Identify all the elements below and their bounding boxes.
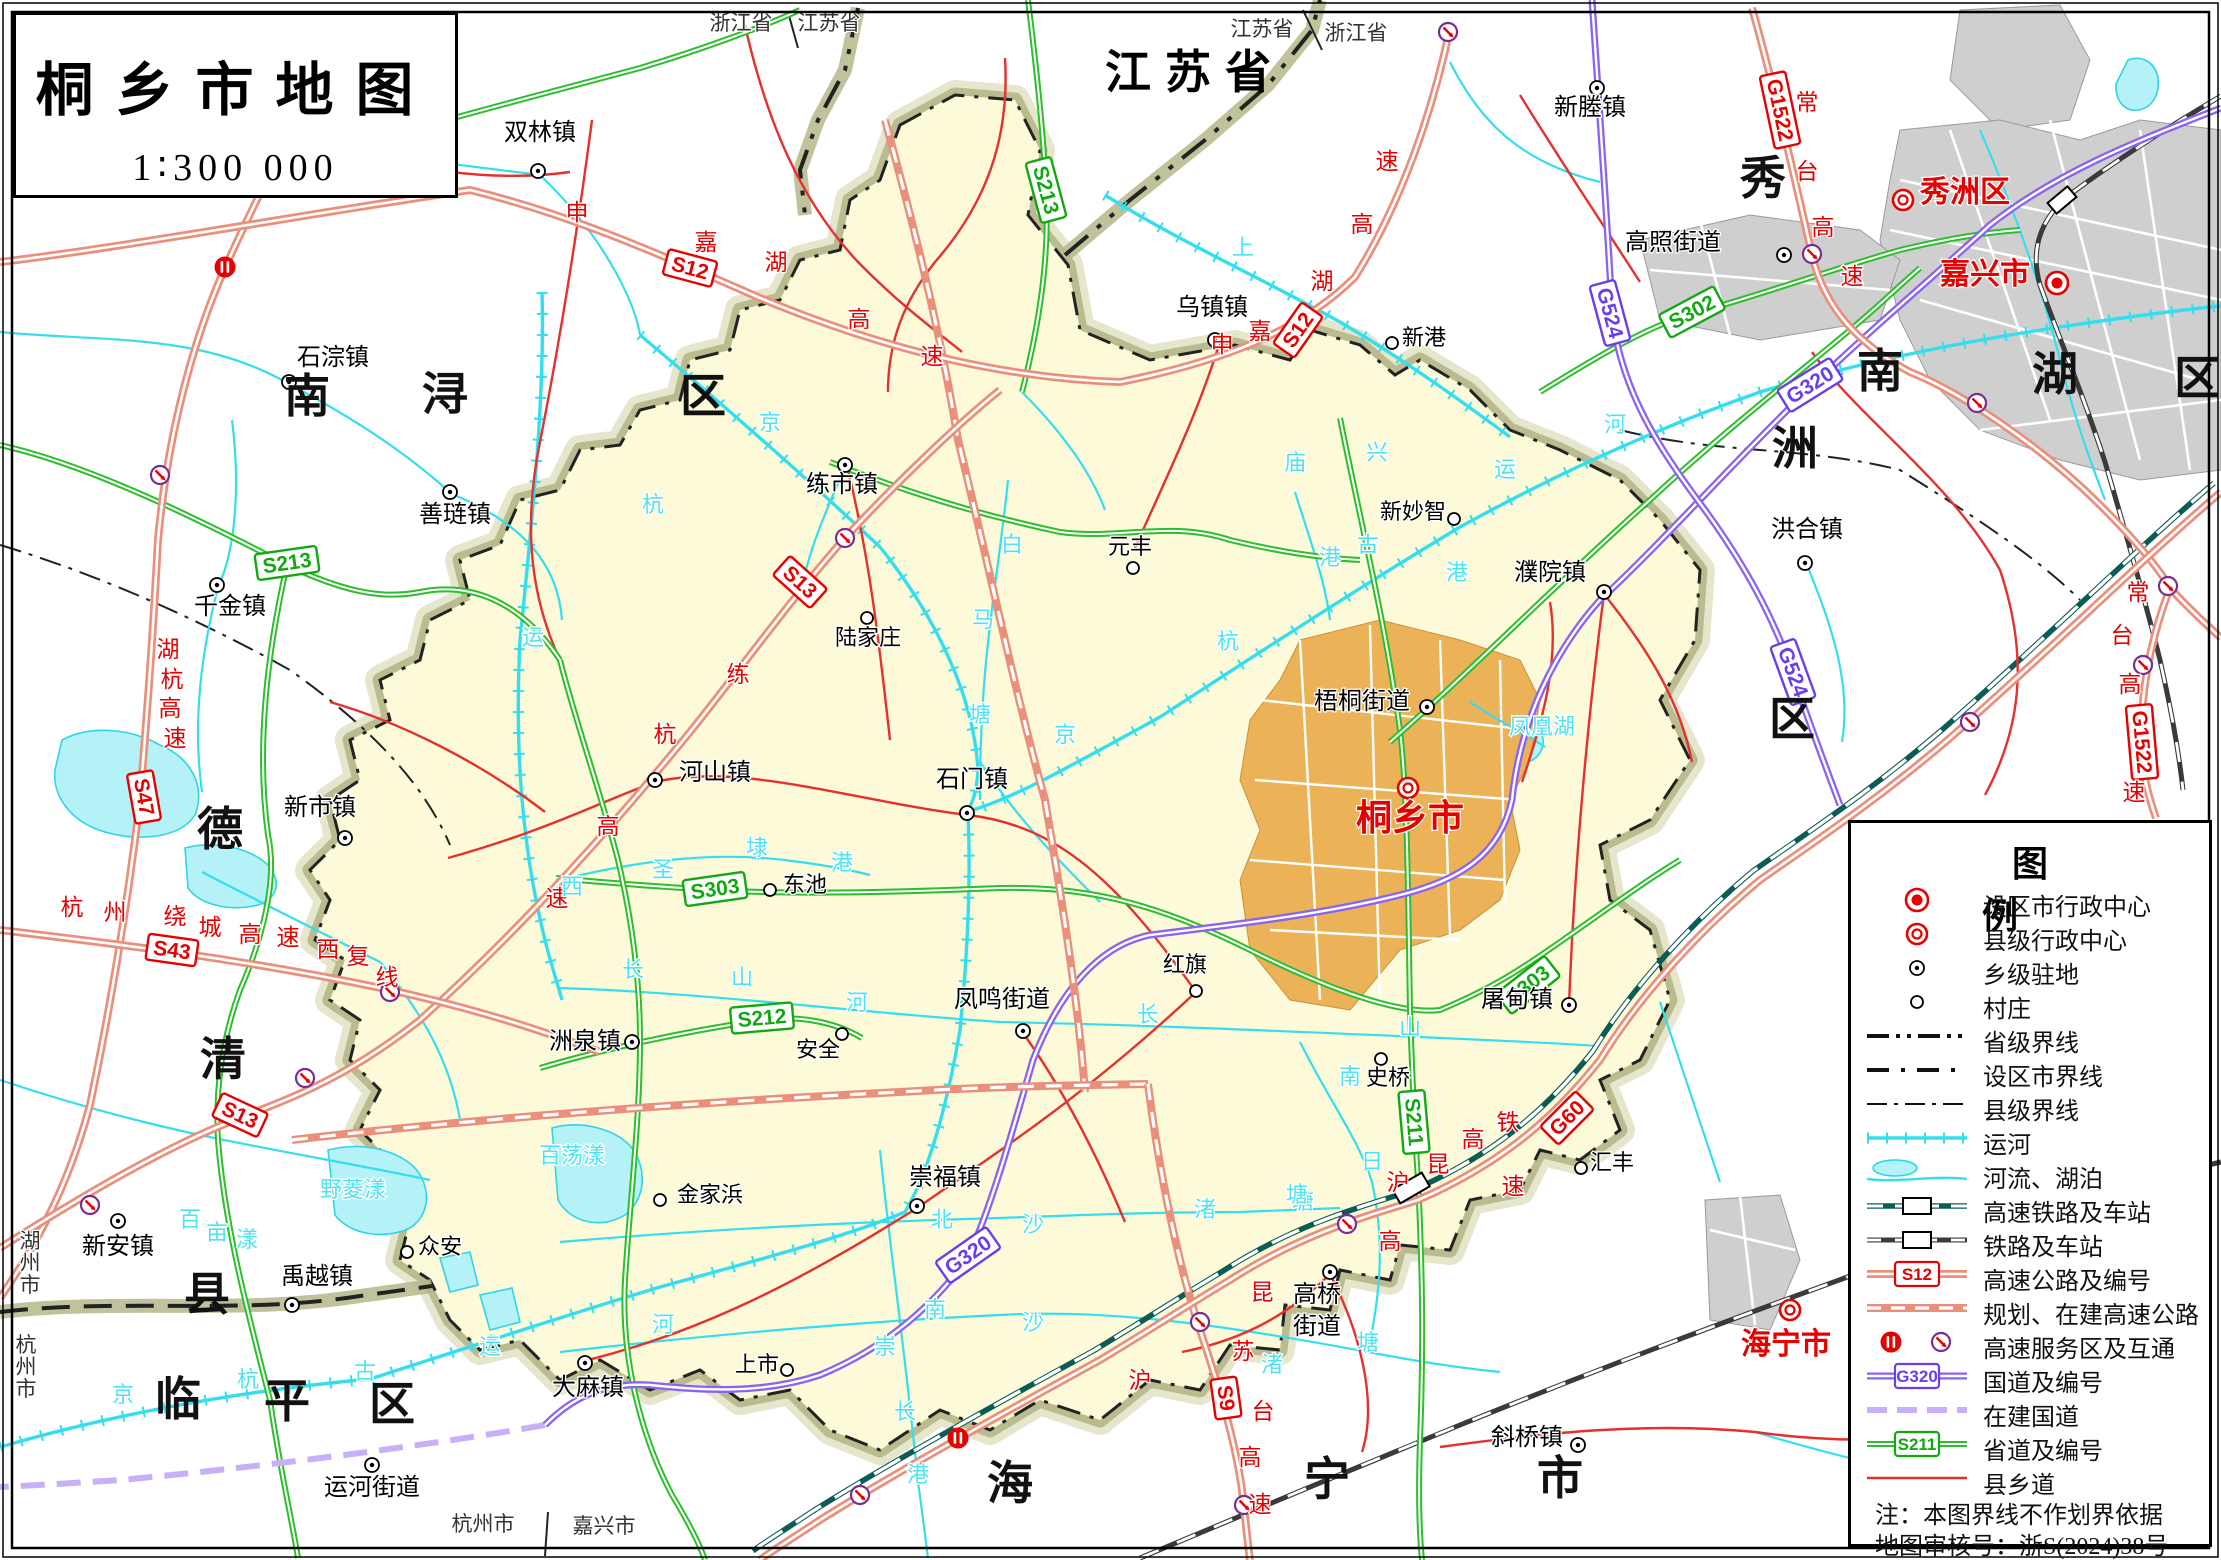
label-riv: 杭 <box>237 1367 259 1392</box>
label-bord: 江苏省 <box>1231 17 1294 41</box>
legend-item-5: 省级界线 <box>1851 1021 2209 1051</box>
township-symbol <box>365 1458 379 1472</box>
township-symbol <box>1798 556 1812 570</box>
label-edgev: 湖州市 <box>20 1229 41 1297</box>
label-dist: 湖 <box>2032 349 2078 400</box>
label-town: 高照街道 <box>1625 229 1721 256</box>
svg-text:S211: S211 <box>1400 1097 1427 1147</box>
label-road: 高 <box>597 814 620 839</box>
label-riv: 河 <box>846 990 868 1015</box>
label-riv: 塘 <box>969 702 991 727</box>
label-dist: 临 <box>155 1374 201 1425</box>
label-road: 速 <box>1376 149 1399 174</box>
label-town: 新市镇 <box>284 794 356 821</box>
label-road: 绕 <box>164 904 187 929</box>
township-symbol <box>210 578 224 592</box>
label-riv: 河 <box>652 1312 674 1337</box>
label-riv: 百 <box>179 1207 201 1232</box>
label-road: 常 <box>2127 580 2150 605</box>
label-city2: 嘉兴市 <box>1940 257 2030 291</box>
village-symbol <box>654 1194 666 1206</box>
township-symbol <box>443 485 457 499</box>
township-symbol <box>1777 248 1791 262</box>
label-riv: 运 <box>1494 457 1516 482</box>
label-town: 千金镇 <box>194 593 266 620</box>
legend-symbol-countyline <box>1861 1089 1973 1119</box>
svg-text:S12: S12 <box>1902 1265 1932 1284</box>
township-symbol <box>1562 998 1576 1012</box>
label-road: 嘉 <box>1249 319 1272 344</box>
city-center-symbol <box>2046 272 2068 294</box>
label-vill: 金家浜 <box>677 1182 743 1207</box>
interchange-icon <box>1803 245 1821 263</box>
label-riv: 野菱漾 <box>320 1177 386 1202</box>
label-bord: 浙江省 <box>1325 21 1388 45</box>
label-road: 复 <box>347 944 370 969</box>
legend-label: 高速公路及编号 <box>1983 1261 2151 1296</box>
label-dist: 洲 <box>1772 423 1818 474</box>
village-symbol <box>764 884 776 896</box>
label-riv: 古 <box>354 1359 376 1384</box>
label-town: 屠甸镇 <box>1481 986 1553 1013</box>
legend-label: 乡级驻地 <box>1983 955 2079 990</box>
svg-text:S211: S211 <box>1898 1435 1937 1454</box>
label-road: 湖 <box>157 637 180 662</box>
legend-item-15: G320国道及编号 <box>1851 1361 2209 1391</box>
legend-symbol-planned <box>1861 1293 1973 1323</box>
label-town: 练市镇 <box>806 471 878 498</box>
label-bord: 杭州市 <box>452 1512 515 1536</box>
label-riv: 兴 <box>1366 440 1388 465</box>
svg-text:G320: G320 <box>1896 1367 1938 1386</box>
label-vill: 新港 <box>1402 325 1446 350</box>
label-road: 城 <box>199 915 222 940</box>
label-road: 申 <box>566 200 589 225</box>
svg-text:S9: S9 <box>1212 1384 1238 1413</box>
interchange-icon <box>1968 394 1986 412</box>
label-road: 线 <box>376 965 399 990</box>
label-riv: 港 <box>1319 545 1341 570</box>
label-road: 练 <box>727 662 750 687</box>
township-symbol <box>1571 1438 1585 1452</box>
label-road: 速 <box>1249 1492 1272 1517</box>
label-road: 常 <box>1796 90 1819 115</box>
label-vill: 红旗 <box>1163 952 1207 977</box>
label-road: 苏 <box>1232 1339 1255 1364</box>
label-prov: 江苏省 <box>1105 47 1285 98</box>
label-riv: 亩 <box>206 1220 228 1245</box>
label-riv: 漾 <box>236 1227 258 1252</box>
label-vill: 东池 <box>783 872 827 897</box>
label-road: 昆 <box>1251 1280 1274 1305</box>
label-riv: 港 <box>831 850 853 875</box>
township-symbol <box>1590 81 1604 95</box>
label-riv: 长 <box>894 1399 916 1424</box>
label-town: 乌镇镇 <box>1176 294 1248 321</box>
interchange-icon <box>81 1196 99 1214</box>
township-symbol <box>648 773 662 787</box>
label-road: 高 <box>848 307 871 332</box>
svg-text:S212: S212 <box>737 1005 788 1032</box>
label-riv: 凤凰湖 <box>1509 714 1575 739</box>
label-road: 沪 <box>1387 1170 1410 1195</box>
label-town: 运河街道 <box>324 1474 420 1501</box>
township-symbol <box>1016 1024 1030 1038</box>
label-road: 杭 <box>61 895 84 920</box>
legend-symbol-provline <box>1861 1021 1973 1051</box>
label-riv: 圣 <box>652 857 674 882</box>
label-riv: 杭 <box>642 492 664 517</box>
label-riv: 渚 <box>1261 1352 1283 1377</box>
label-dist: 区 <box>369 1379 415 1430</box>
service-area-icon <box>215 257 236 278</box>
legend-label: 河流、湖泊 <box>1983 1159 2103 1194</box>
service-area-icon <box>948 1428 969 1449</box>
label-dist: 南 <box>1857 346 1903 397</box>
label-road: 州 <box>104 900 127 925</box>
label-riv: 长 <box>622 957 644 982</box>
legend-label: 在建国道 <box>1983 1397 2079 1432</box>
label-dist: 区 <box>680 371 726 422</box>
legend-item-18: 县乡道 <box>1851 1463 2209 1493</box>
legend-item-7: 县级界线 <box>1851 1089 2209 1119</box>
label-riv: 百荡漾 <box>539 1143 605 1168</box>
legend-symbol-ucnational <box>1861 1395 1973 1425</box>
label-riv: 运 <box>522 625 544 650</box>
label-road: 高 <box>1462 1127 1485 1152</box>
label-riv: 南 <box>924 1297 946 1322</box>
label-dist: 德 <box>197 804 243 855</box>
legend-symbol-service <box>1861 1327 1973 1357</box>
label-riv: 杭 <box>1217 629 1239 654</box>
label-town: 大麻镇 <box>552 1374 624 1401</box>
road-badge-S43: S43 <box>145 934 198 967</box>
legend-item-1: 设区市行政中心 <box>1851 885 2209 915</box>
label-town: 善琏镇 <box>419 501 491 528</box>
legend-item-10: 高速铁路及车站 <box>1851 1191 2209 1221</box>
label-road: 速 <box>1502 1174 1525 1199</box>
label-city2: 秀洲区 <box>1919 176 2010 209</box>
label-town: 濮院镇 <box>1514 559 1586 586</box>
label-road: 台 <box>2111 623 2134 648</box>
label-dist: 海 <box>987 1458 1033 1509</box>
legend-label: 县级行政中心 <box>1983 921 2127 956</box>
label-road: 湖 <box>1311 269 1334 294</box>
label-riv: 运 <box>479 1334 501 1359</box>
legend-label: 高速铁路及车站 <box>1983 1193 2151 1228</box>
township-symbol <box>531 164 545 178</box>
legend-symbol-expwy: S12 <box>1861 1259 1973 1289</box>
label-riv: 崇 <box>874 1334 896 1359</box>
village-symbol <box>1386 337 1398 349</box>
label-dist: 南 <box>284 371 330 422</box>
township-symbol <box>111 1214 125 1228</box>
label-dist: 市 <box>1537 1453 1583 1504</box>
label-town: 斜桥镇 <box>1491 1424 1563 1451</box>
label-road: 西 <box>317 937 340 962</box>
label-riv: 沙 <box>1022 1212 1044 1237</box>
interchange-icon <box>151 466 169 484</box>
legend-symbol-twn <box>1861 953 1973 983</box>
label-vill: 新妙智 <box>1380 499 1446 524</box>
legend-label: 设区市界线 <box>1983 1057 2103 1092</box>
label-riv: 马 <box>972 607 994 632</box>
legend-symbol-vlg <box>1861 987 1973 1017</box>
label-riv: 京 <box>1054 722 1076 747</box>
label-road: 嘉 <box>695 230 718 255</box>
label-road: 台 <box>1252 1399 1275 1424</box>
label-riv: 塘 <box>1286 1182 1308 1207</box>
legend-symbol-canal <box>1861 1123 1973 1153</box>
township-symbol <box>960 806 974 820</box>
label-road: 高 <box>2119 672 2142 697</box>
legend-symbol-rail <box>1861 1225 1973 1255</box>
interchange-icon <box>836 529 854 547</box>
label-riv: 沙 <box>1022 1310 1044 1335</box>
label-riv: 南 <box>1339 1064 1361 1089</box>
label-riv: 庙 <box>1284 450 1306 475</box>
label-vill: 上市 <box>735 1352 779 1377</box>
label-vill: 汇丰 <box>1590 1150 1634 1175</box>
township-symbol <box>838 458 852 472</box>
label-riv: 西 <box>561 874 583 899</box>
label-vill: 史桥 <box>1366 1065 1410 1090</box>
legend-note-2: 地图审核号：浙S(2024)38号 <box>1875 1526 2168 1560</box>
map-scale: 1∶300 000 <box>16 145 455 190</box>
label-town: 新塍镇 <box>1554 94 1626 121</box>
legend-label: 国道及编号 <box>1983 1363 2103 1398</box>
label-riv: 河 <box>1604 412 1626 437</box>
legend-label: 设区市行政中心 <box>1983 887 2151 922</box>
interchange-icon <box>296 1069 314 1087</box>
township-symbol <box>285 1298 299 1312</box>
county-center-symbol <box>1780 1300 1800 1320</box>
township-symbol <box>338 831 352 845</box>
label-road: 沪 <box>1129 1368 1152 1393</box>
legend-label: 高速服务区及互通 <box>1983 1329 2175 1364</box>
village-symbol <box>1448 513 1460 525</box>
legend-symbol-cnty <box>1861 919 1973 949</box>
legend-symbol-countyroad <box>1861 1463 1973 1493</box>
label-town: 石门镇 <box>936 766 1008 793</box>
label-riv: 山 <box>731 965 753 990</box>
legend-symbol-provincial: S211 <box>1861 1429 1973 1459</box>
interchange-icon <box>1961 713 1979 731</box>
label-road: 杭 <box>161 667 184 692</box>
village-symbol <box>781 1364 793 1376</box>
legend-symbol-national: G320 <box>1861 1361 1973 1391</box>
legend-item-17: S211省道及编号 <box>1851 1429 2209 1459</box>
label-road: 速 <box>164 726 187 751</box>
label-dist: 区 <box>1769 694 1815 745</box>
legend-item-8: 运河 <box>1851 1123 2209 1153</box>
label-town: 崇福镇 <box>909 1164 981 1191</box>
label-riv: 北 <box>931 1207 953 1232</box>
label-road: 高 <box>1379 1229 1402 1254</box>
village-symbol <box>1575 1162 1587 1174</box>
township-symbol <box>1420 700 1434 714</box>
page-title: 桐乡市地图 <box>16 43 455 127</box>
township-symbol <box>1323 1265 1337 1279</box>
road-badge-G1522: G1522 <box>2126 704 2158 780</box>
legend-label: 村庄 <box>1983 989 2031 1024</box>
label-edgev: 杭州市 <box>16 1333 37 1401</box>
interchange-icon <box>1191 1313 1209 1331</box>
road-badge-S211: S211 <box>1398 1090 1429 1154</box>
legend-symbol-hsr <box>1861 1191 1973 1221</box>
legend-label: 省级界线 <box>1983 1023 2079 1058</box>
legend-item-13: 规划、在建高速公路 <box>1851 1293 2209 1323</box>
legend-item-14: 高速服务区及互通 <box>1851 1327 2209 1357</box>
legend-note-1: 注：本图界线不作划界依据 <box>1875 1495 2163 1530</box>
label-riv: 长 <box>1137 1002 1159 1027</box>
road-badge-G1522: G1522 <box>1760 71 1801 149</box>
legend-item-11: 铁路及车站 <box>1851 1225 2209 1255</box>
legend-label: 运河 <box>1983 1125 2031 1160</box>
label-bord: 嘉兴市 <box>573 1514 636 1538</box>
label-road: 速 <box>921 344 944 369</box>
legend-label: 规划、在建高速公路 <box>1983 1295 2199 1330</box>
interchange-icon <box>1338 1215 1356 1233</box>
interchange-icon <box>2159 577 2177 595</box>
road-badge-S212: S212 <box>730 1002 794 1033</box>
label-riv: 日 <box>1361 1149 1383 1174</box>
village-symbol <box>1127 562 1139 574</box>
label-town: 石淙镇 <box>297 344 369 371</box>
label-riv: 港 <box>907 1462 929 1487</box>
legend-item-2: 县级行政中心 <box>1851 919 2209 949</box>
label-road: 台 <box>1796 159 1819 184</box>
label-town: 街道 <box>1293 1313 1341 1340</box>
label-vill: 元丰 <box>1108 534 1152 559</box>
legend-item-16: 在建国道 <box>1851 1395 2209 1425</box>
map-page: S12S12S13S13S47S43S9G1522G1522G60G320G32… <box>0 0 2221 1560</box>
label-town: 洪合镇 <box>1771 516 1843 543</box>
legend-symbol-riverlake <box>1861 1157 1973 1187</box>
village-symbol <box>1190 985 1202 997</box>
label-road: 湖 <box>765 250 788 275</box>
label-vill: 安全 <box>796 1037 840 1062</box>
label-bord: 江苏省 <box>798 11 861 35</box>
label-town: 洲泉镇 <box>549 1028 621 1055</box>
label-vill: 陆家庄 <box>835 625 901 650</box>
label-road: 昆 <box>1427 1152 1450 1177</box>
label-town: 梧桐街道 <box>1314 688 1410 715</box>
label-dist: 平 <box>264 1376 310 1427</box>
township-symbol <box>578 1356 592 1370</box>
label-town: 双林镇 <box>504 119 576 146</box>
label-road: 高 <box>159 696 182 721</box>
label-riv: 古 <box>1357 532 1379 557</box>
legend-symbol-cityline <box>1861 1055 1973 1085</box>
legend-label: 县级界线 <box>1983 1091 2079 1126</box>
county-center-symbol <box>1398 778 1418 798</box>
legend-item-6: 设区市界线 <box>1851 1055 2209 1085</box>
label-town: 新安镇 <box>82 1233 154 1260</box>
label-dist: 宁 <box>1304 1454 1350 1505</box>
label-vill: 众安 <box>418 1234 462 1259</box>
label-road: 速 <box>2123 780 2146 805</box>
label-town: 河山镇 <box>679 759 751 786</box>
label-road: 高 <box>1239 1445 1262 1470</box>
label-riv: 塘 <box>1357 1330 1379 1355</box>
township-symbol <box>910 1199 924 1213</box>
label-dist: 区 <box>2174 353 2220 404</box>
legend: 图 例 设区市行政中心县级行政中心乡级驻地村庄省级界线设区市界线县级界线运河河流… <box>1848 820 2212 1547</box>
label-town: 禹越镇 <box>281 1263 353 1290</box>
legend-item-4: 村庄 <box>1851 987 2209 1017</box>
label-road: 铁 <box>1497 1110 1520 1135</box>
legend-label: 省道及编号 <box>1983 1431 2103 1466</box>
interchange-icon <box>851 1486 869 1504</box>
label-road: 高 <box>1351 212 1374 237</box>
label-road: 申 <box>1211 332 1234 357</box>
village-symbol <box>401 1246 413 1258</box>
label-town: 凤鸣街道 <box>954 986 1050 1013</box>
township-symbol <box>1597 585 1611 599</box>
label-riv: 白 <box>1001 532 1023 557</box>
label-dist: 浔 <box>422 369 468 420</box>
label-bord: 浙江省 <box>710 11 773 35</box>
label-riv: 渚 <box>1194 1197 1216 1222</box>
label-road: 速 <box>277 925 300 950</box>
label-riv: 港 <box>1446 560 1468 585</box>
county-center-symbol <box>1893 190 1913 210</box>
label-city2: 海宁市 <box>1741 1327 1831 1361</box>
village-symbol <box>1375 1053 1387 1065</box>
title-box: 桐乡市地图 1∶300 000 <box>13 12 458 198</box>
township-symbol <box>625 1035 639 1049</box>
label-riv: 京 <box>759 410 781 435</box>
interchange-icon <box>1439 23 1457 41</box>
label-road: 速 <box>1841 264 1864 289</box>
label-town: 高桥 <box>1293 1281 1341 1308</box>
label-riv: 京 <box>112 1382 134 1407</box>
label-city1: 桐乡市 <box>1356 798 1464 838</box>
legend-item-12: S12高速公路及编号 <box>1851 1259 2209 1289</box>
label-riv: 山 <box>1399 1015 1421 1040</box>
road-badge-G524: G524 <box>1589 280 1630 347</box>
label-dist: 县 <box>184 1269 230 1320</box>
village-symbol <box>861 612 873 624</box>
legend-item-9: 河流、湖泊 <box>1851 1157 2209 1187</box>
label-road: 杭 <box>654 722 677 747</box>
label-dist: 清 <box>200 1034 246 1085</box>
label-dist: 秀 <box>1739 153 1786 204</box>
legend-label: 铁路及车站 <box>1983 1227 2103 1262</box>
legend-symbol-cty <box>1861 885 1973 915</box>
label-road: 高 <box>239 922 262 947</box>
label-riv: 上 <box>1232 235 1254 260</box>
road-badge-S9: S9 <box>1210 1376 1241 1419</box>
label-riv: 埭 <box>746 835 768 860</box>
legend-item-3: 乡级驻地 <box>1851 953 2209 983</box>
label-road: 高 <box>1812 215 1835 240</box>
